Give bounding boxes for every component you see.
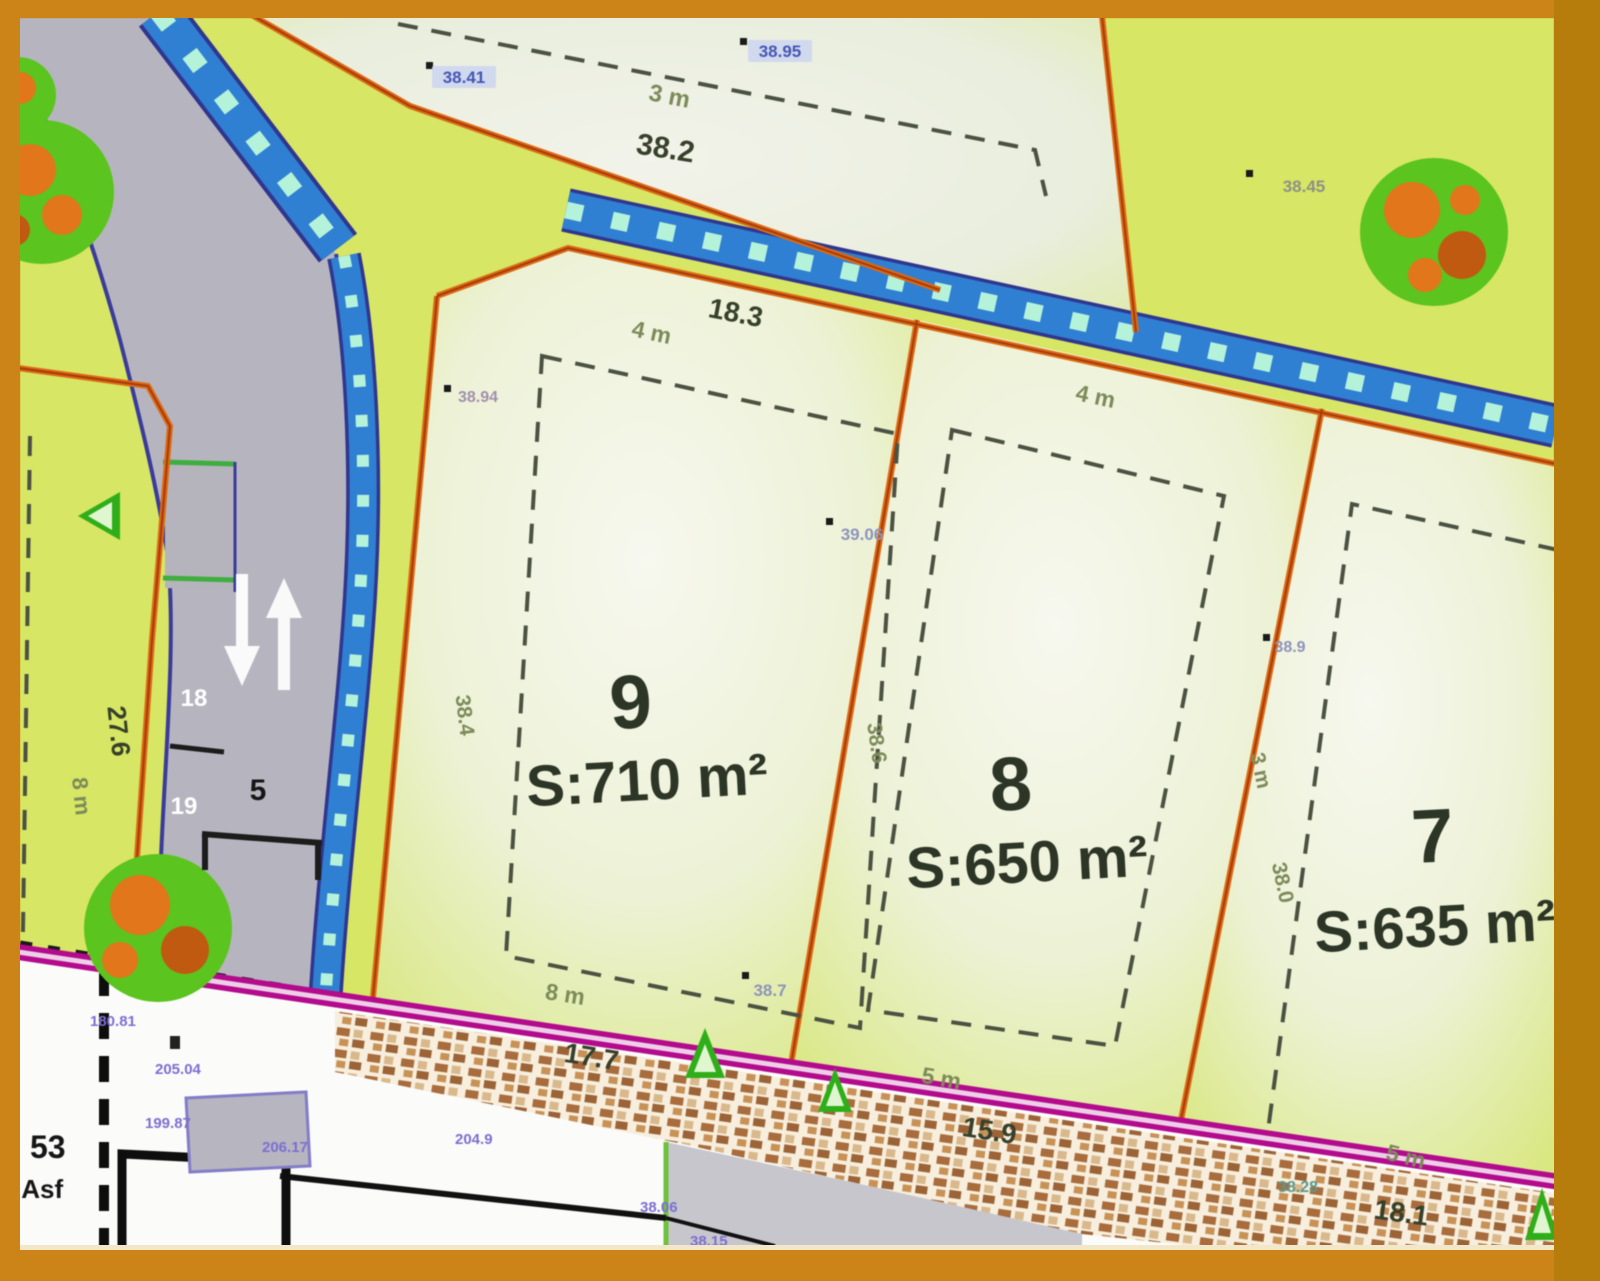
lot-7-area-label: S:635 m²: [1313, 888, 1558, 966]
road-width-label: 5: [250, 774, 267, 807]
survey-mark-dot: [170, 1036, 180, 1049]
lot-8-area-label: S:650 m²: [905, 824, 1150, 902]
left-lot-setback-label: 8 m: [67, 776, 96, 816]
spot-height-label: 38.45: [1283, 177, 1326, 196]
lot-9-area-label: S:710 m²: [525, 742, 770, 820]
survey-mark-label: 199.87: [145, 1115, 191, 1132]
cadastral-plan-screenshot: 9 S:710 m² 8 S:650 m² 7 S:635 m² 3 m 38.…: [0, 0, 1600, 1281]
tree-icon: [1360, 158, 1508, 306]
spot-height-label: 38.95: [759, 42, 802, 61]
spot-height-label: 38.9: [1274, 639, 1305, 656]
surface-type-label: .Asf: [14, 1174, 63, 1204]
survey-mark-label: 204.9: [455, 1131, 493, 1148]
spot-height-label: 38.7: [753, 981, 786, 1000]
spot-height-label: 38.41: [443, 68, 486, 87]
existing-building-gray: [186, 1092, 310, 1172]
frame-inner-highlight: [20, 1245, 1554, 1250]
road-station-label: 19: [171, 793, 198, 820]
survey-mark-label: 205.04: [155, 1061, 202, 1078]
block-number-label: 53: [30, 1129, 66, 1165]
subdivision-plan-map: 9 S:710 m² 8 S:650 m² 7 S:635 m² 3 m 38.…: [0, 0, 1600, 1281]
left-lot-depth-label: 27.6: [101, 704, 136, 757]
lot-9-number-label: 9: [607, 659, 654, 746]
survey-mark-label: 206.17: [262, 1139, 308, 1156]
road-station-label: 18: [181, 685, 208, 712]
spot-height-label: 38.94: [458, 389, 498, 406]
lot-8-number-label: 8: [987, 741, 1034, 828]
map-content: 9 S:710 m² 8 S:650 m² 7 S:635 m² 3 m 38.…: [0, 12, 1560, 1267]
parking-green-line: [163, 462, 235, 464]
survey-mark-label: 180.81: [90, 1013, 136, 1030]
plan-frame-right-band: [1554, 0, 1600, 1281]
spot-height-label: 39.06: [841, 525, 884, 544]
parking-bay: [165, 460, 233, 590]
tree-icon: [84, 854, 232, 1002]
spot-height-label: 38.28: [1278, 1179, 1318, 1196]
lot-7-number-label: 7: [1409, 793, 1456, 880]
survey-mark-label: 38.06: [640, 1199, 678, 1216]
parking-green-line: [163, 578, 235, 580]
